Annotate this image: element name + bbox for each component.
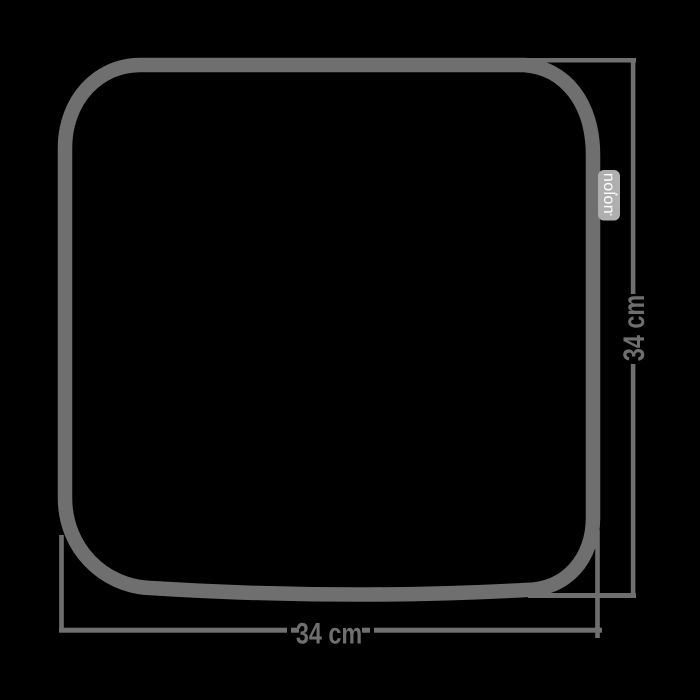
svg-text:34 cm: 34 cm xyxy=(617,295,650,361)
svg-text:34 cm: 34 cm xyxy=(296,617,362,650)
svg-text:nolon: nolon xyxy=(600,173,617,214)
